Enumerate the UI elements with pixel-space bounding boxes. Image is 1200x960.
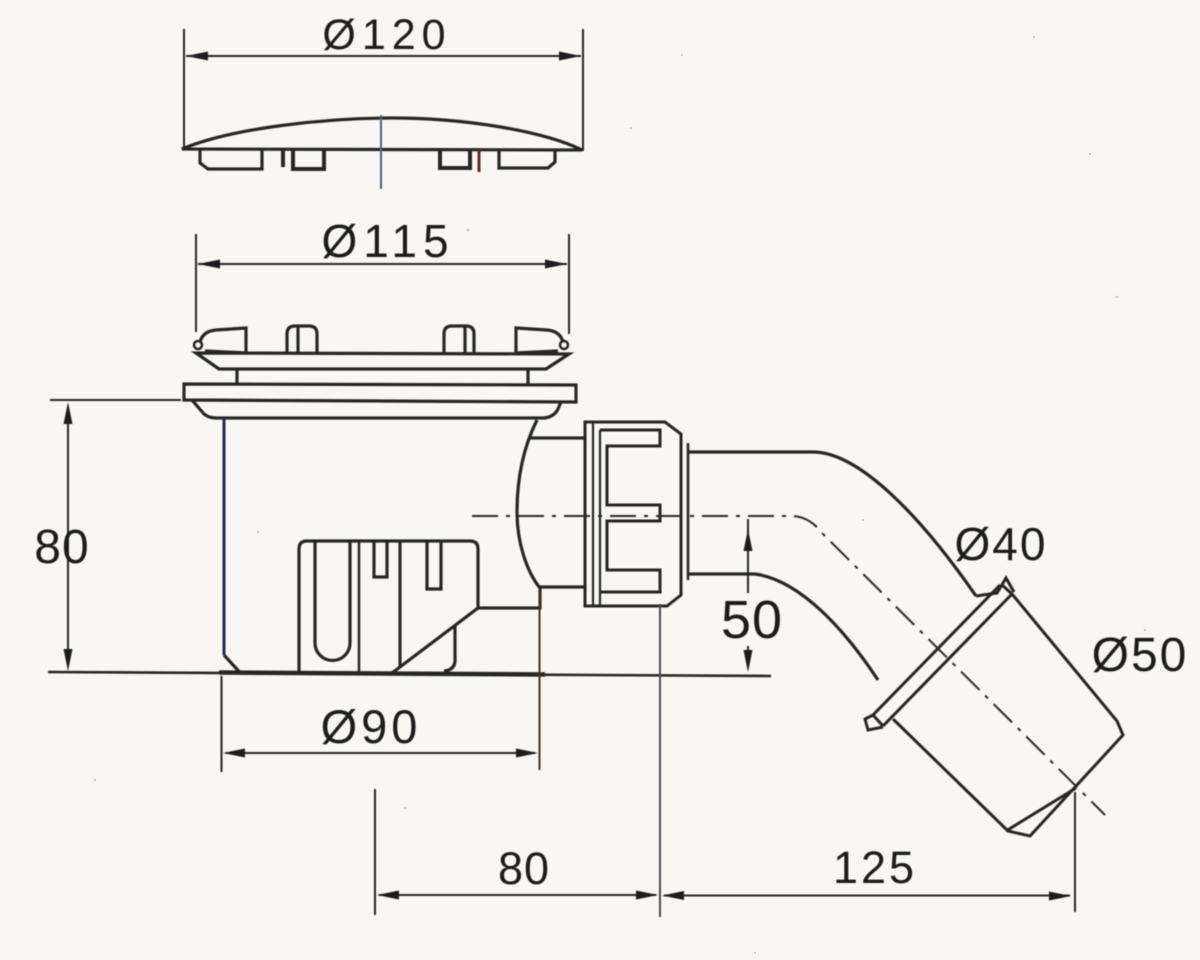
svg-text:50: 50 — [721, 590, 783, 650]
svg-text:80: 80 — [34, 521, 89, 574]
svg-text:Ø40: Ø40 — [955, 518, 1048, 570]
svg-text:Ø115: Ø115 — [321, 215, 454, 267]
svg-text:Ø50: Ø50 — [1092, 629, 1189, 682]
svg-text:80: 80 — [498, 843, 550, 894]
svg-text:Ø90: Ø90 — [321, 700, 422, 753]
svg-text:125: 125 — [833, 842, 917, 893]
svg-text:Ø120: Ø120 — [322, 11, 451, 59]
